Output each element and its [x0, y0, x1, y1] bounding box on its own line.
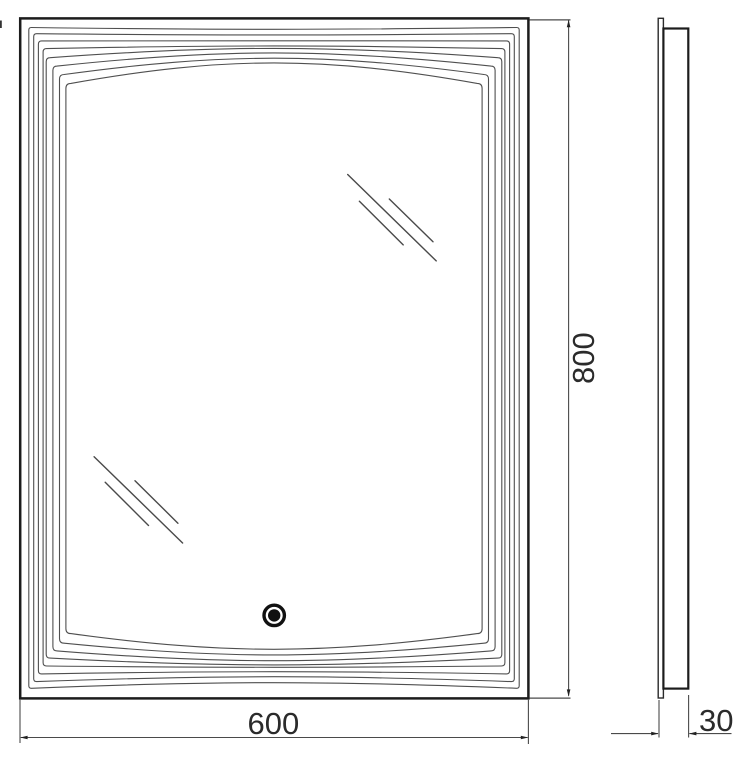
svg-text:30: 30	[699, 703, 733, 738]
svg-text:600: 600	[248, 706, 300, 741]
svg-text:800: 800	[566, 332, 601, 384]
